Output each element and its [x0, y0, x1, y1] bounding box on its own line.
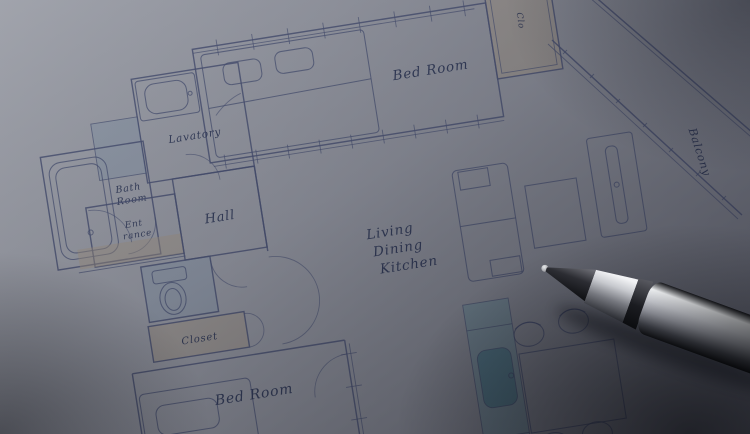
label-balcony: Balcony — [685, 125, 713, 177]
sink-icon — [135, 72, 201, 121]
label-bedroom-top: Bed Room — [391, 56, 470, 84]
room-toilet — [141, 251, 251, 322]
double-bed-icon — [200, 29, 379, 158]
room-bedroom-top: Bed Room — [191, 0, 505, 171]
room-hall: Hall — [172, 166, 267, 260]
kitchen-counter-icon — [463, 298, 544, 434]
floor-plan-drawing: Bed Room Clo Lava — [0, 0, 750, 434]
balcony-area: Balcony — [548, 0, 750, 219]
floor-plan-main: Bed Room Clo Lava — [14, 0, 691, 434]
room-closet-top: Clo — [473, 0, 563, 79]
sofa-icon — [452, 163, 525, 282]
room-lavatory: Lavatory — [85, 62, 256, 198]
tv-board-icon — [586, 132, 647, 238]
label-hall: Hall — [203, 208, 237, 228]
low-table-icon — [525, 178, 586, 248]
floorplan-photo: Bed Room Clo Lava — [0, 0, 750, 434]
